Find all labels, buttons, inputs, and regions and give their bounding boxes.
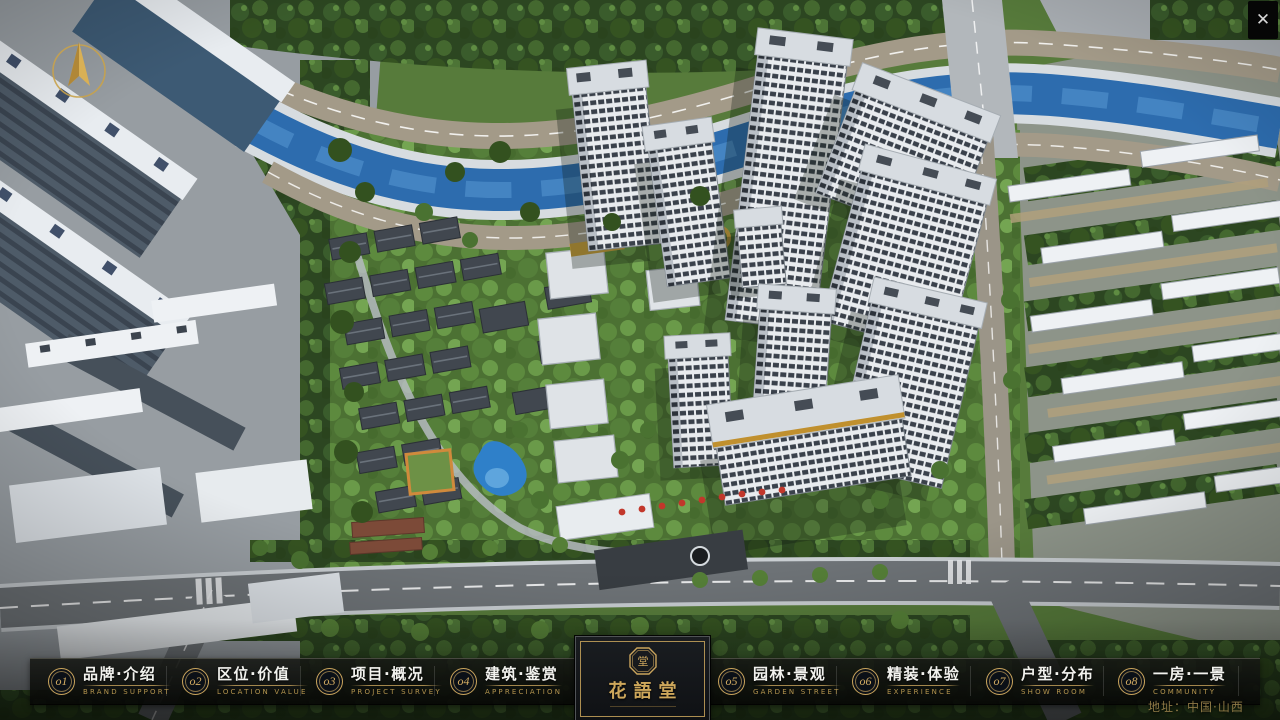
nav-label-en: GARDEN STREET xyxy=(753,689,841,696)
nav-label-zh: 项目·概况 xyxy=(351,667,442,682)
nav-badge-o1: o1 xyxy=(48,668,75,695)
close-button[interactable]: ✕ xyxy=(1248,1,1278,39)
logo-seal-icon: 堂 xyxy=(628,646,658,676)
nav-label-zh: 建筑·鉴赏 xyxy=(485,667,562,682)
logo-seal-glyph: 堂 xyxy=(637,655,648,668)
nav-label-en: SHOW ROOM xyxy=(1021,689,1094,696)
nav-separator xyxy=(970,666,971,696)
nav-label-zh: 户型·分布 xyxy=(1021,667,1094,682)
presentation-window: ✕ o1 品牌·介绍 BRAND SUPPORT o2 区位·价值 LOCATI… xyxy=(0,0,1280,720)
nav-label-zh: 园林·景观 xyxy=(753,667,841,682)
nav-label-en: COMMUNITY xyxy=(1153,689,1226,696)
nav-item-brand[interactable]: o1 品牌·介绍 BRAND SUPPORT xyxy=(48,664,171,698)
logo-inner-frame: 堂 花語堂 xyxy=(580,641,705,717)
nav-item-location[interactable]: o2 区位·价值 LOCATION VALUE xyxy=(182,664,308,698)
nav-badge-o3: o3 xyxy=(316,668,343,695)
nav-underline xyxy=(217,685,308,686)
nav-badge-o5: o5 xyxy=(718,668,745,695)
nav-underline xyxy=(1021,685,1094,686)
nav-label-en: EXPERIENCE xyxy=(887,689,960,696)
nav-label-zh: 一房·一景 xyxy=(1153,667,1226,682)
nav-separator xyxy=(1103,666,1104,696)
nav-underline xyxy=(887,685,960,686)
nav-separator xyxy=(1238,666,1239,696)
nav-underline xyxy=(351,685,442,686)
logo-subline xyxy=(610,706,676,707)
nav-item-project[interactable]: o3 项目·概况 PROJECT SURVEY xyxy=(316,664,442,698)
nav-item-floorplans[interactable]: o7 户型·分布 SHOW ROOM xyxy=(986,664,1094,698)
nav-badge-o8: o8 xyxy=(1118,668,1145,695)
address-text: 地址：中国·山西 xyxy=(1148,698,1244,715)
project-logo-panel[interactable]: 堂 花語堂 xyxy=(575,636,710,720)
nav-label-zh: 区位·价值 xyxy=(217,667,308,682)
aerial-masterplan-render xyxy=(0,0,1280,720)
nav-badge-o7: o7 xyxy=(986,668,1013,695)
nav-label-en: BRAND SUPPORT xyxy=(83,689,171,696)
nav-badge-o4: o4 xyxy=(450,668,477,695)
nav-label-en: PROJECT SURVEY xyxy=(351,689,442,696)
nav-badge-o6: o6 xyxy=(852,668,879,695)
nav-underline xyxy=(485,685,562,686)
nav-label-en: LOCATION VALUE xyxy=(217,689,308,696)
nav-item-garden[interactable]: o5 园林·景观 GARDEN STREET xyxy=(718,664,841,698)
nav-item-interior[interactable]: o6 精装·体验 EXPERIENCE xyxy=(852,664,960,698)
nav-label-en: APPRECIATION xyxy=(485,689,562,696)
nav-label-zh: 精装·体验 xyxy=(887,667,960,682)
nav-label-zh: 品牌·介绍 xyxy=(83,667,171,682)
nav-underline xyxy=(753,685,841,686)
nav-badge-o2: o2 xyxy=(182,668,209,695)
clubhouse xyxy=(406,450,454,494)
nav-underline xyxy=(83,685,171,686)
nav-underline xyxy=(1153,685,1226,686)
nav-item-views[interactable]: o8 一房·一景 COMMUNITY xyxy=(1118,664,1226,698)
nav-item-architecture[interactable]: o4 建筑·鉴赏 APPRECIATION xyxy=(450,664,562,698)
logo-title: 花語堂 xyxy=(602,677,684,703)
